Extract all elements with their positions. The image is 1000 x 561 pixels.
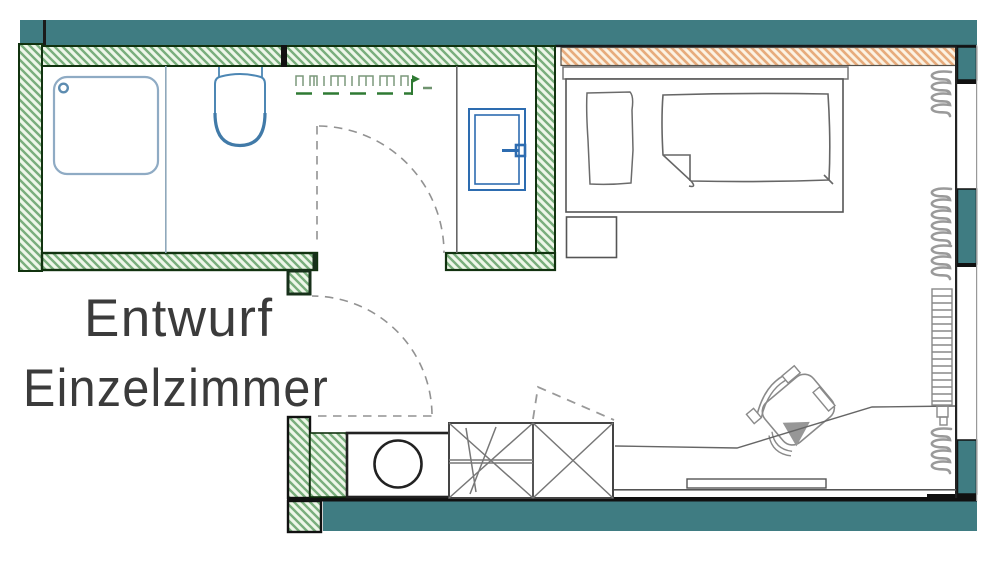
svg-text:Einzelzimmer: Einzelzimmer — [23, 359, 329, 418]
svg-text:Entwurf: Entwurf — [84, 289, 273, 348]
